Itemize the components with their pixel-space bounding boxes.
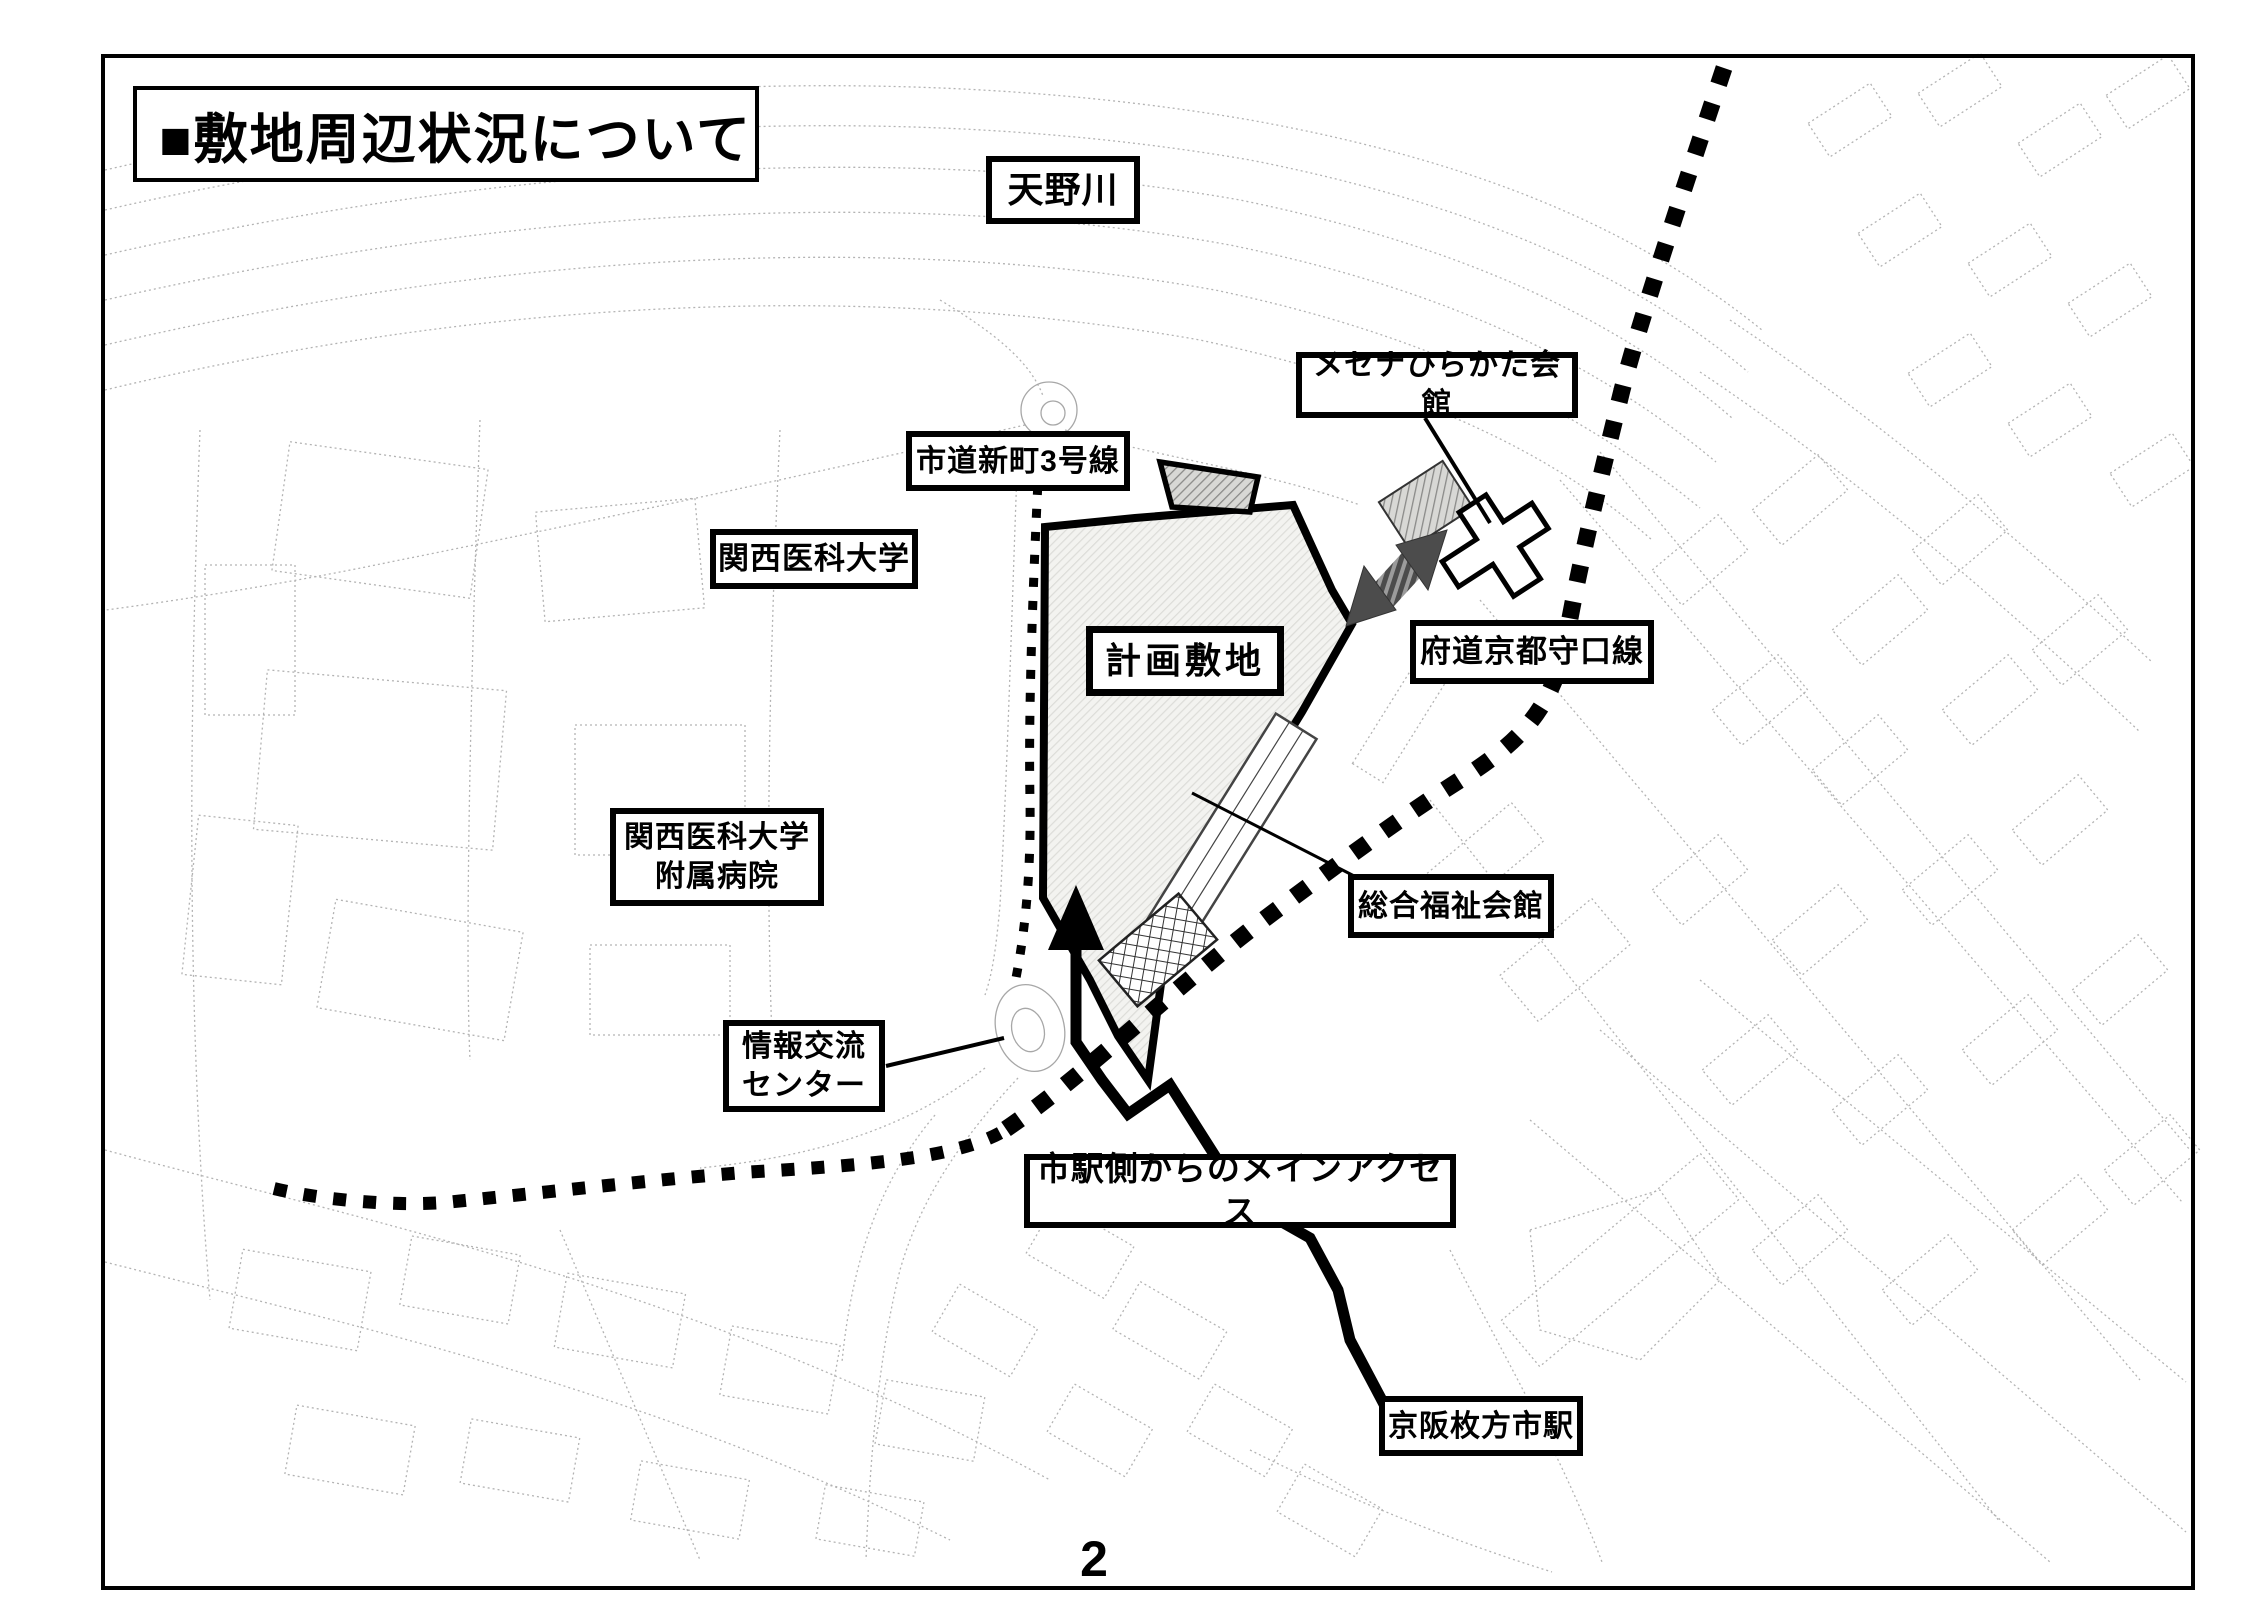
scanned-map-page: ■敷地周辺状況について 天野川 メセナひらかた会館 市道新町3号線 関西医科大学… xyxy=(0,0,2248,1623)
city-road-shinmachi-dotted-line xyxy=(1014,440,1040,988)
roundabout-information-center xyxy=(986,977,1074,1080)
map-label-mecenat-hirakata-hall: メセナひらかた会館 xyxy=(1296,352,1578,418)
map-label-kansai-medical-university-hospital: 関西医科大学 附属病院 xyxy=(610,808,824,906)
map-label-planned-site: 計画敷地 xyxy=(1086,626,1284,696)
map-label-main-access-from-station: 市駅側からのメインアクセス xyxy=(1024,1154,1456,1228)
connection-arrow xyxy=(1346,530,1447,626)
map-label-city-road-shinmachi-3: 市道新町3号線 xyxy=(906,431,1130,491)
prefectural-road-dotted-line-west xyxy=(272,1133,1000,1204)
page-title: ■敷地周辺状況について xyxy=(133,86,759,182)
planned-site-outline xyxy=(1043,505,1352,1080)
map-label-keihan-hirakatashi-station: 京阪枚方市駅 xyxy=(1379,1396,1583,1456)
page-number: 2 xyxy=(1062,1530,1126,1592)
map-label-kansai-medical-university: 関西医科大学 xyxy=(710,529,918,589)
map-label-pref-road-kyoto-moriguchi: 府道京都守口線 xyxy=(1410,620,1654,684)
map-label-information-exchange-center: 情報交流 センター xyxy=(723,1020,885,1112)
site-map-drawing xyxy=(0,0,2248,1623)
map-label-amanogawa-river: 天野川 xyxy=(986,156,1140,224)
hatched-wedge-building xyxy=(1160,462,1258,512)
map-label-general-welfare-hall: 総合福祉会館 xyxy=(1348,874,1554,938)
roundabout-north xyxy=(1021,382,1077,438)
